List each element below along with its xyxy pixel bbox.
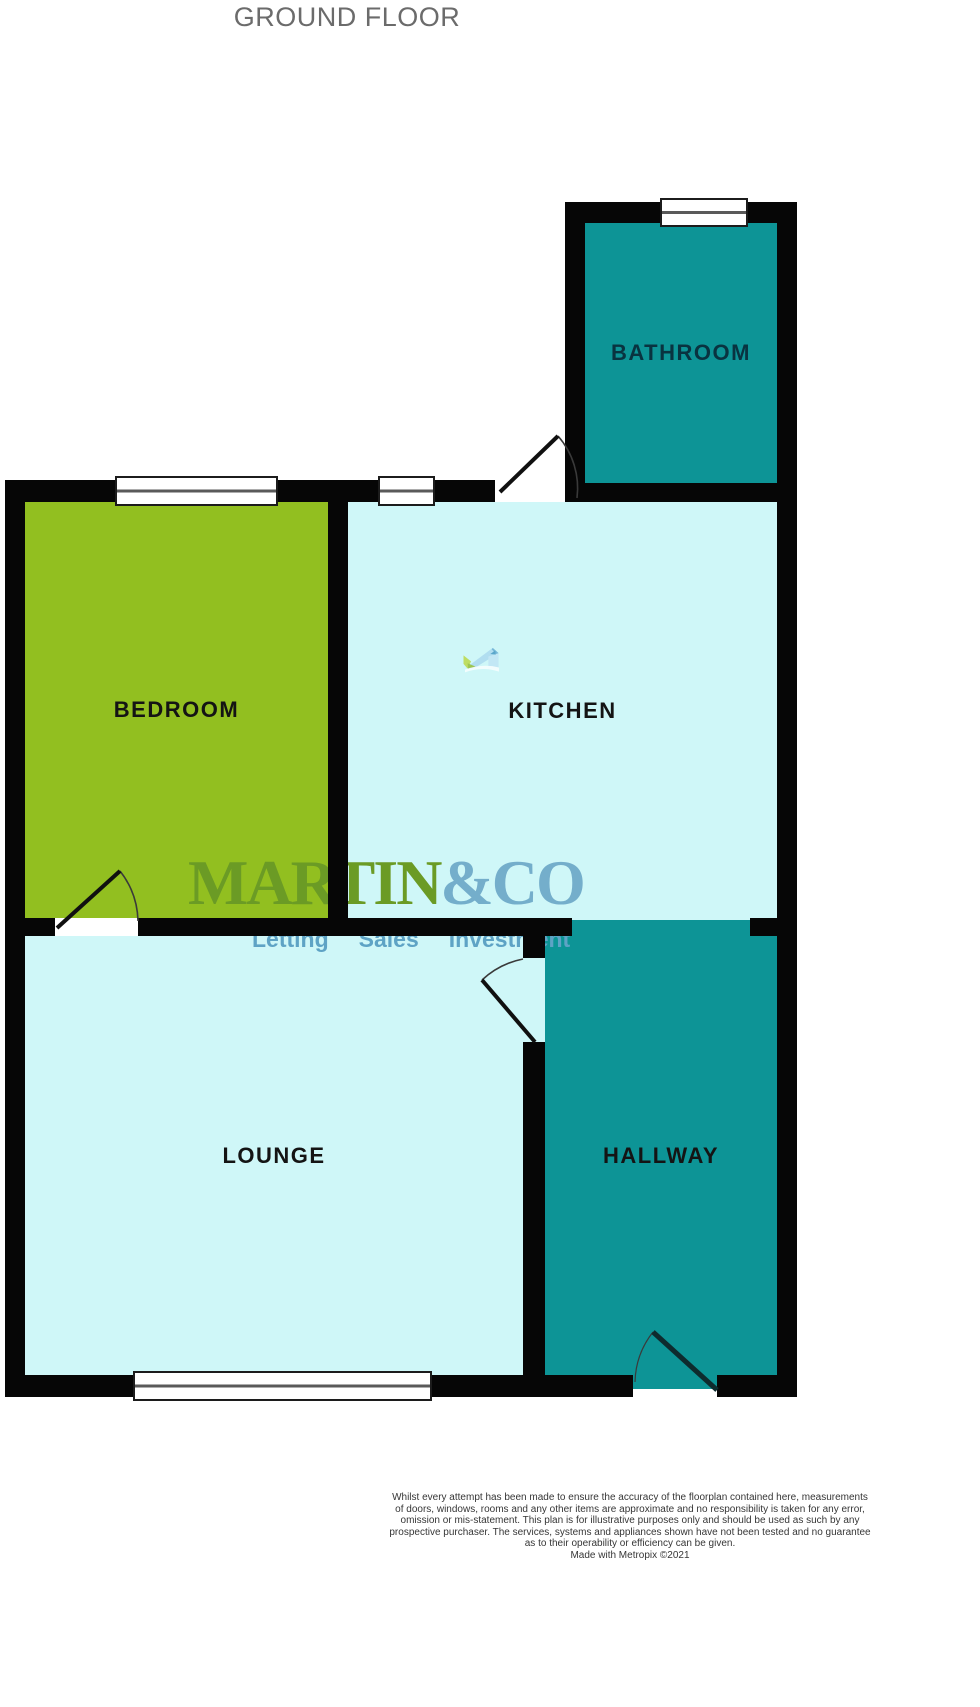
metropix-credit: Made with Metropix ©2021 bbox=[295, 1550, 965, 1562]
bedroom-window bbox=[115, 476, 278, 506]
wall-segment bbox=[278, 480, 378, 502]
bedroom-label: BEDROOM bbox=[114, 697, 239, 723]
hallway-label: HALLWAY bbox=[603, 1143, 719, 1169]
disclaimer-line: prospective purchaser. The services, sys… bbox=[295, 1527, 965, 1539]
wall-segment bbox=[585, 483, 777, 502]
wall-segment bbox=[138, 918, 572, 936]
wall-segment bbox=[717, 1375, 797, 1397]
wall-segment bbox=[565, 202, 585, 502]
room-hallway: HALLWAY bbox=[545, 936, 777, 1375]
wall-segment bbox=[5, 1375, 133, 1397]
kitchen-hallway-opening bbox=[572, 920, 750, 936]
room-bathroom: BATHROOM bbox=[585, 223, 777, 483]
wall-segment bbox=[523, 918, 545, 958]
wall-segment bbox=[432, 1375, 633, 1397]
wall-segment bbox=[328, 502, 348, 918]
wall-segment bbox=[777, 202, 797, 1397]
lounge-label: LOUNGE bbox=[222, 1143, 325, 1169]
lounge-window bbox=[133, 1371, 432, 1401]
wall-segment bbox=[523, 1042, 545, 1397]
logo-house-icon bbox=[415, 645, 625, 795]
disclaimer-text: Whilst every attempt has been made to en… bbox=[295, 1492, 965, 1562]
logo-brand-secondary: &CO bbox=[440, 847, 583, 918]
disclaimer-line: Whilst every attempt has been made to en… bbox=[295, 1492, 965, 1504]
door-leaf bbox=[500, 436, 558, 492]
wall-segment bbox=[5, 918, 55, 936]
disclaimer-line: omission or mis-statement. This plan is … bbox=[295, 1515, 965, 1527]
page-title: GROUND FLOOR bbox=[0, 2, 694, 33]
wall-segment bbox=[5, 480, 25, 1397]
wall-segment bbox=[748, 202, 797, 223]
disclaimer-line: of doors, windows, rooms and any other i… bbox=[295, 1504, 965, 1516]
bathroom-label: BATHROOM bbox=[611, 340, 751, 366]
kitchen-window bbox=[378, 476, 435, 506]
floorplan-page: GROUND FLOOR BATHROOM BEDROOM KITCHEN HA… bbox=[0, 0, 980, 1707]
wall-segment bbox=[435, 480, 495, 502]
wall-segment bbox=[5, 480, 115, 502]
logo-wordmark: MARTIN&CO bbox=[188, 851, 584, 915]
disclaimer-line: as to their operability or efficiency ca… bbox=[295, 1538, 965, 1550]
front-door-threshold bbox=[633, 1375, 717, 1389]
logo-brand-primary: MARTIN bbox=[188, 847, 440, 918]
bathroom-window bbox=[660, 198, 748, 227]
room-lounge: LOUNGE bbox=[25, 936, 523, 1375]
hallway-doorway-threshold bbox=[523, 958, 545, 1042]
